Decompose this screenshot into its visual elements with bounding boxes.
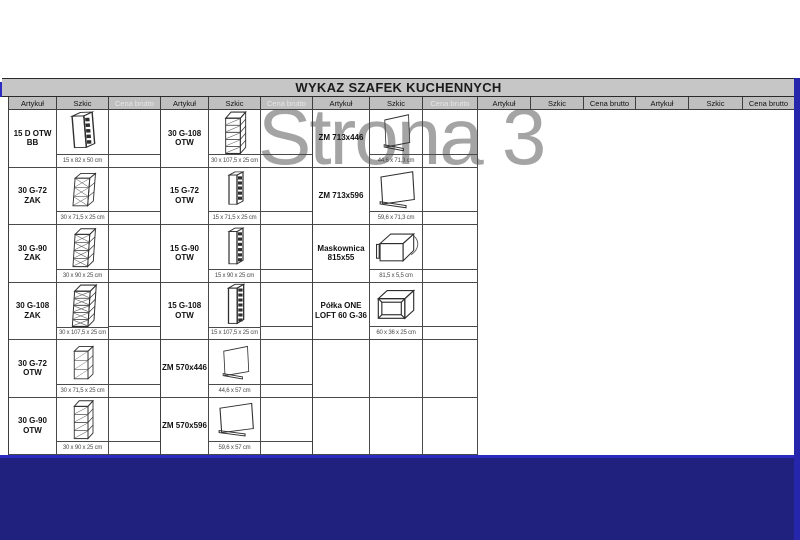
table-row [313,340,478,398]
column-header-artykul: Artykuł [478,97,531,110]
sketch-dimensions: 59,6 x 57 cm [209,441,260,454]
sketch-cell: 59,6 x 71,3 cm [370,168,423,226]
column-header-cena-brutto: Cena brutto [109,97,161,110]
sketch-dimensions: 81,5 x 5,5 cm [370,269,422,282]
table-row: 30 G-90 ZAK 30 x 90 x 25 cm [9,225,161,283]
article-cell: 30 G-90 OTW [9,398,57,456]
price-cell [261,168,313,226]
column-header-cena-brutto: Cena brutto [261,97,313,110]
price-cell [423,283,478,341]
price-cell [261,225,313,283]
cabinet-sketch-icon [67,171,99,207]
page-title: WYKAZ SZAFEK KUCHENNYCH [2,78,795,97]
right-navy-strip [794,78,800,540]
sketch-dimensions: 15 x 107,5 x 25 cm [209,327,260,339]
sketch-cell: 15 x 107,5 x 25 cm [209,283,261,341]
article-cell: 30 G-108 OTW [161,110,209,168]
sketch-dimensions: 15 x 82 x 50 cm [57,154,108,167]
sketch-dimensions: 30 x 71,5 x 25 cm [57,384,108,397]
sketch-cell: 81,5 x 5,5 cm [370,225,423,283]
cabinet-sketch-icon [376,168,416,210]
sketch-dimensions: 44,6 x 71,3 cm [370,154,422,167]
price-cell-divider [261,441,312,454]
sketch-cell: 30 x 90 x 25 cm [57,225,109,283]
sketch-cell: 30 x 71,5 x 25 cm [57,340,109,398]
price-cell [109,225,161,283]
cabinet-sketch-icon [222,283,248,327]
price-cell-divider [109,211,160,224]
price-cell-divider [423,326,477,339]
price-cell-divider [261,269,312,282]
price-cell [423,110,478,168]
price-cell-empty [423,340,478,398]
column-header-artykul: Artykuł [161,97,209,110]
cabinet-sketch-icon [223,170,247,208]
table-row: 30 G-72 ZAK 30 x 71,5 x 25 cm [9,168,161,226]
sketch-dimensions: 44,6 x 57 cm [209,384,260,397]
price-cell-divider [109,384,160,397]
table-row: ZM 713x446 44,6 x 71,3 cm [313,110,478,168]
price-cell-divider [109,154,160,167]
table-group-5: Artykuł Szkic Cena brutto [635,97,795,110]
column-header-artykul: Artykuł [313,97,370,110]
price-cell [261,398,313,456]
sketch-cell: 15 x 90 x 25 cm [209,225,261,283]
column-header-cena-brutto: Cena brutto [584,97,636,110]
cabinet-sketch-icon [67,226,99,268]
table-row: ZM 570x596 59,6 x 57 cm [161,398,313,456]
article-cell: 15 G-90 OTW [161,225,209,283]
sketch-cell: 59,6 x 57 cm [209,398,261,456]
price-cell [261,340,313,398]
article-cell: 15 G-72 OTW [161,168,209,226]
column-header-szkic: Szkic [209,97,261,110]
table-row: Maskownica 815x55 81,5 x 5,5 cm [313,225,478,283]
sketch-dimensions: 30 x 107,5 x 25 cm [57,327,108,339]
article-cell: ZM 713x446 [313,110,370,168]
sketch-dimensions: 59,6 x 71,3 cm [370,211,422,224]
column-header-artykul: Artykuł [9,97,57,110]
article-cell-empty [313,398,370,456]
table-row: ZM 713x596 59,6 x 71,3 cm [313,168,478,226]
price-cell [109,398,161,456]
table-header-row: Artykuł Szkic Cena brutto [636,97,795,110]
sketch-dimensions: 15 x 71,5 x 25 cm [209,211,260,224]
sketch-cell: 15 x 82 x 50 cm [57,110,109,168]
price-cell-divider [423,154,477,167]
cabinet-sketch-icon [373,287,419,321]
article-cell: ZM 570x596 [161,398,209,456]
article-cell: Maskownica 815x55 [313,225,370,283]
cabinet-sketch-icon [381,111,411,153]
price-cell [109,168,161,226]
table-header-row: Artykuł Szkic Cena brutto [161,97,313,110]
table-header-row: Artykuł Szkic Cena brutto [313,97,478,110]
sketch-dimensions: 30 x 90 x 25 cm [57,441,108,454]
price-cell [109,340,161,398]
price-cell [423,225,478,283]
price-cell-divider [261,326,312,339]
column-header-cena-brutto: Cena brutto [743,97,795,110]
table-row: ZM 570x446 44,6 x 57 cm [161,340,313,398]
price-cell [261,110,313,168]
table-row: 15 D OTW BB 15 x 82 x 50 cm [9,110,161,168]
sketch-cell: 30 x 71,5 x 25 cm [57,168,109,226]
price-cell-divider [261,384,312,397]
article-cell: 15 G-108 OTW [161,283,209,341]
table-group-3: Artykuł Szkic Cena brutto ZM 713x446 44,… [312,97,478,455]
table-row [313,398,478,456]
table-row: 15 G-90 OTW 15 x 90 x 25 cm [161,225,313,283]
table-header-row: Artykuł Szkic Cena brutto [478,97,636,110]
column-header-szkic: Szkic [57,97,109,110]
sketch-dimensions: 30 x 90 x 25 cm [57,269,108,282]
sketch-dimensions: 30 x 107,5 x 25 cm [209,154,260,166]
price-cell-divider [423,269,477,282]
table-row: 30 G-90 OTW 30 x 90 x 25 cm [9,398,161,456]
table-group-4: Artykuł Szkic Cena brutto [477,97,636,110]
table-row: Półka ONE LOFT 60 G-36 60 x 36 x 25 cm [313,283,478,341]
cabinet-sketch-icon [220,343,250,381]
article-cell: 30 G-72 OTW [9,340,57,398]
price-cell-divider [261,154,312,167]
sketch-cell: 44,6 x 71,3 cm [370,110,423,168]
document-page: WYKAZ SZAFEK KUCHENNYCH Strona 3 Artykuł… [0,0,800,540]
sketch-cell-empty [370,340,423,398]
sketch-cell: 30 x 90 x 25 cm [57,398,109,456]
article-cell: 30 G-108 ZAK [9,283,57,341]
column-header-szkic: Szkic [531,97,584,110]
cabinet-sketch-icon [68,344,98,380]
bottom-navy-band [0,458,800,540]
table-row: 15 G-108 OTW 15 x 107,5 x 25 cm [161,283,313,341]
table-row: 30 G-72 OTW 30 x 71,5 x 25 cm [9,340,161,398]
sketch-dimensions: 30 x 71,5 x 25 cm [57,211,108,224]
table-group-1: Artykuł Szkic Cena brutto 15 D OTW BB 15… [8,97,161,455]
article-cell: 15 D OTW BB [9,110,57,168]
sketch-cell: 44,6 x 57 cm [209,340,261,398]
column-header-cena-brutto: Cena brutto [423,97,478,110]
cabinet-sketch-icon [219,110,251,154]
price-cell-divider [109,441,160,454]
table-row: 30 G-108 ZAK 30 x 107,5 x 25 cm [9,283,161,341]
price-cell-divider [109,269,160,282]
column-header-artykul: Artykuł [636,97,689,110]
price-cell-divider [261,211,312,224]
article-cell: 30 G-90 ZAK [9,225,57,283]
price-cell-divider [109,326,160,339]
table-row: 15 G-72 OTW 15 x 71,5 x 25 cm [161,168,313,226]
cabinet-sketch-icon [68,398,98,440]
article-cell-empty [313,340,370,398]
price-cell-empty [423,398,478,456]
article-cell: ZM 713x596 [313,168,370,226]
article-cell: Półka ONE LOFT 60 G-36 [313,283,370,341]
cabinet-sketch-icon [373,228,419,266]
price-cell [261,283,313,341]
price-cell-divider [423,211,477,224]
table-group-2: Artykuł Szkic Cena brutto 30 G-108 OTW 3… [160,97,313,455]
table-row: 30 G-108 OTW 30 x 107,5 x 25 cm [161,110,313,168]
sketch-cell: 15 x 71,5 x 25 cm [209,168,261,226]
article-cell: ZM 570x446 [161,340,209,398]
cabinet-sketch-icon [66,283,100,327]
price-cell [109,283,161,341]
price-cell [423,168,478,226]
price-cell [109,110,161,168]
sketch-cell: 30 x 107,5 x 25 cm [57,283,109,341]
article-cell: 30 G-72 ZAK [9,168,57,226]
sketch-cell-empty [370,398,423,456]
column-header-szkic: Szkic [689,97,743,110]
cabinet-sketch-icon [223,226,247,268]
cabinet-sketch-icon [215,400,255,438]
table-header-row: Artykuł Szkic Cena brutto [9,97,161,110]
sketch-dimensions: 15 x 90 x 25 cm [209,269,260,282]
sketch-dimensions: 60 x 36 x 25 cm [370,326,422,339]
sketch-cell: 60 x 36 x 25 cm [370,283,423,341]
column-header-szkic: Szkic [370,97,423,110]
cabinet-sketch-icon [68,111,98,153]
sketch-cell: 30 x 107,5 x 25 cm [209,110,261,168]
